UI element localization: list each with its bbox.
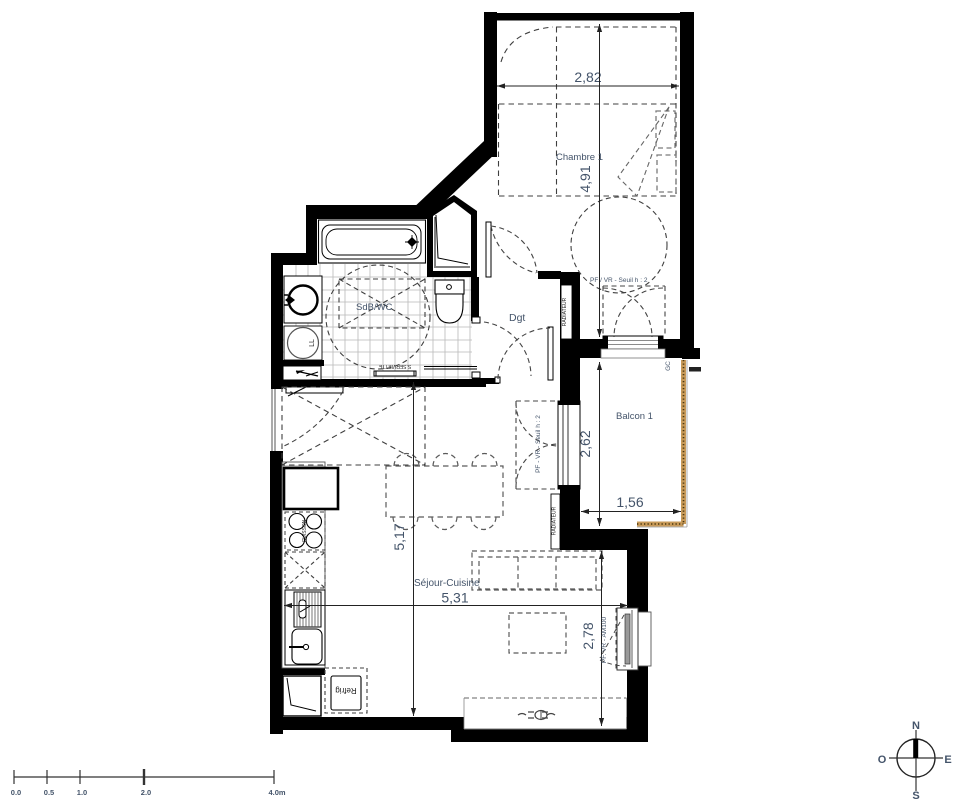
svg-text:PF - VR - Seuil h : 2: PF - VR - Seuil h : 2 — [535, 415, 542, 473]
svg-text:GC: GC — [665, 361, 672, 371]
svg-text:RADIATEUR: RADIATEUR — [552, 506, 558, 535]
svg-text:PF / VR - Seuil h : 2: PF / VR - Seuil h : 2 — [590, 277, 648, 284]
svg-text:1.0: 1.0 — [77, 788, 87, 797]
svg-text:RADIATEUR: RADIATEUR — [562, 297, 568, 326]
svg-text:0.0: 0.0 — [11, 788, 21, 797]
svg-text:0.5: 0.5 — [44, 788, 54, 797]
svg-text:2.0: 2.0 — [141, 788, 151, 797]
svg-text:4.0m: 4.0m — [268, 788, 285, 797]
svg-text:4,91: 4,91 — [577, 165, 593, 192]
svg-text:CUISSON: CUISSON — [302, 519, 308, 542]
svg-text:O: O — [878, 754, 887, 766]
svg-text:Refrig: Refrig — [335, 686, 356, 695]
svg-text:E: E — [944, 754, 951, 766]
svg-text:LL: LL — [309, 339, 316, 347]
svg-text:2,62: 2,62 — [577, 430, 593, 457]
svg-text:2,82: 2,82 — [574, 69, 601, 85]
svg-text:PF. VR - AM100: PF. VR - AM100 — [601, 617, 608, 664]
svg-text:S: S — [912, 790, 919, 800]
svg-text:Balcon 1: Balcon 1 — [616, 411, 653, 422]
svg-text:Dgt: Dgt — [509, 312, 525, 324]
svg-text:N: N — [912, 720, 920, 732]
svg-text:Chambre 1: Chambre 1 — [556, 152, 603, 163]
svg-text:1,56: 1,56 — [616, 494, 643, 510]
svg-text:5,31: 5,31 — [441, 590, 468, 606]
svg-text:5,17: 5,17 — [391, 523, 407, 550]
svg-text:SdB/WC: SdB/WC — [356, 302, 393, 313]
svg-text:2,78: 2,78 — [580, 622, 596, 649]
svg-text:Séjour-Cuisine: Séjour-Cuisine — [414, 578, 480, 589]
